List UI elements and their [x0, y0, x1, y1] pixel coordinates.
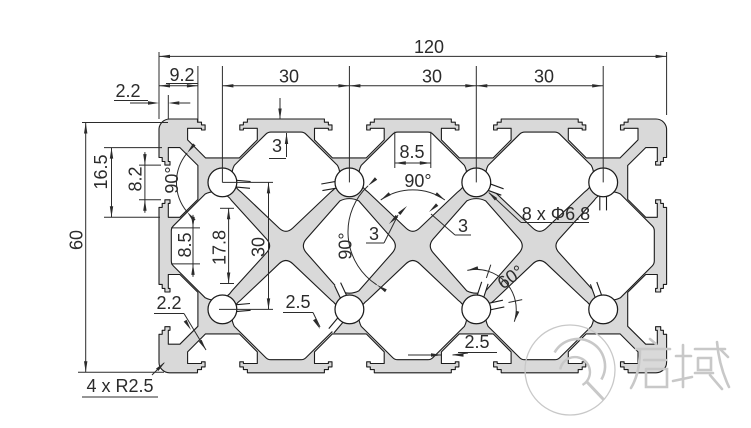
svg-text:9.2: 9.2 — [169, 65, 194, 85]
svg-text:60: 60 — [67, 230, 87, 250]
svg-text:8.2: 8.2 — [126, 166, 146, 191]
svg-text:2.2: 2.2 — [156, 293, 181, 313]
svg-text:2.2: 2.2 — [115, 81, 140, 101]
svg-text:90°: 90° — [404, 171, 431, 191]
svg-text:30: 30 — [422, 67, 442, 87]
svg-text:17.8: 17.8 — [210, 230, 230, 265]
svg-text:4 x R2.5: 4 x R2.5 — [86, 376, 153, 396]
svg-text:3: 3 — [369, 224, 379, 244]
svg-text:30: 30 — [279, 67, 299, 87]
svg-text:90°: 90° — [162, 166, 182, 193]
svg-text:16.5: 16.5 — [91, 154, 111, 189]
svg-text:30: 30 — [534, 67, 554, 87]
svg-text:2.5: 2.5 — [285, 292, 310, 312]
svg-text:30: 30 — [249, 237, 269, 257]
svg-text:3: 3 — [272, 136, 282, 156]
svg-text:8.5: 8.5 — [399, 142, 424, 162]
svg-text:2.5: 2.5 — [464, 332, 489, 352]
svg-text:120: 120 — [414, 37, 444, 57]
svg-text:90°: 90° — [336, 232, 356, 259]
svg-text:8 x Φ6.8: 8 x Φ6.8 — [522, 204, 590, 224]
svg-text:3: 3 — [458, 216, 468, 236]
svg-text:8.5: 8.5 — [175, 232, 195, 257]
